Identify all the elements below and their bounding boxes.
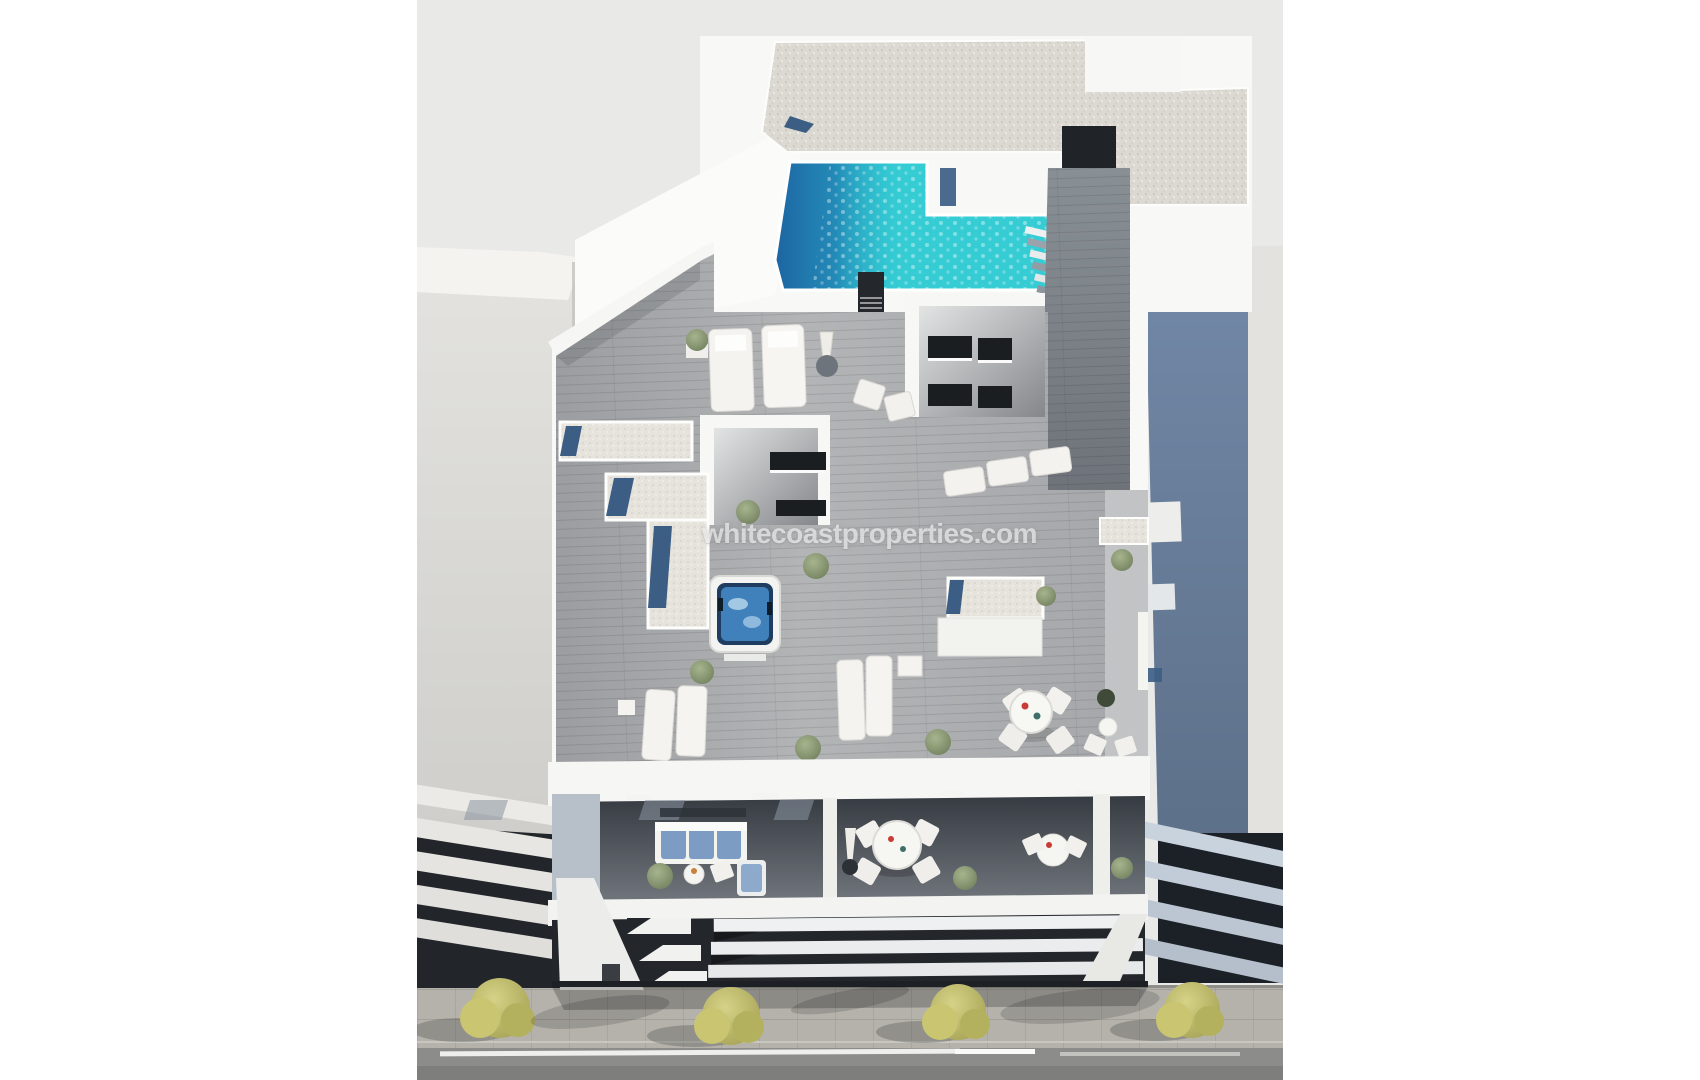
parasol-base (816, 355, 838, 377)
sidewalk-curb-paver (417, 1041, 1283, 1043)
tree-foliage (460, 998, 500, 1038)
stairwell-window (928, 384, 972, 406)
plant-bush (795, 735, 821, 761)
parasol-base (842, 859, 858, 875)
plant-bush (690, 660, 714, 684)
right-pebble-parapet (1100, 518, 1148, 544)
lounger-pillow (715, 334, 747, 351)
water-foam (728, 598, 748, 610)
stairwell-window (978, 386, 1012, 408)
utility-box (602, 964, 620, 982)
plant-bush (925, 729, 951, 755)
stairwell-window (776, 500, 826, 516)
plant-bush (1111, 549, 1133, 571)
round-table (873, 821, 921, 869)
plant-bush (803, 553, 829, 579)
white-terrace-notch (1145, 583, 1176, 610)
sun-lounger (837, 660, 866, 741)
lounger-cushion (741, 864, 762, 892)
sun-lounger (986, 456, 1029, 486)
tree-foliage (694, 1008, 730, 1044)
window-sill (978, 360, 1012, 363)
sofa-cushion (689, 828, 714, 859)
wall-tick (1075, 790, 1097, 795)
stairwell-window (928, 336, 972, 358)
road-asphalt-dark (417, 1066, 1283, 1080)
hot-tub (710, 576, 780, 661)
tree-foliage (1194, 1006, 1224, 1036)
wall-tick (626, 795, 652, 800)
stairwell-window (978, 338, 1012, 360)
stairwell-box-center (700, 415, 830, 525)
roof-white-block (1085, 38, 1181, 92)
lounger-pillow (768, 331, 799, 348)
wall-tick (940, 791, 964, 796)
sun-lounger (1029, 446, 1072, 476)
table-item-red (1022, 703, 1029, 710)
sun-lounger (943, 466, 986, 496)
tree-foliage (732, 1011, 764, 1043)
left-building-roof-wedge (417, 247, 583, 300)
balcony-plant (1111, 857, 1133, 879)
hot-tub-water (721, 587, 769, 641)
sofa-cushion (717, 828, 741, 859)
white-terrace-notch (1144, 501, 1181, 542)
potted-plant (686, 329, 708, 358)
architectural-render (0, 0, 1700, 1080)
headrest (718, 598, 723, 611)
door-pane (464, 800, 508, 820)
balcony-plant (647, 863, 673, 889)
door-pane (774, 800, 814, 820)
balcony-partition (1093, 794, 1110, 904)
hot-tub-step (724, 654, 766, 661)
road-line-faint (1060, 1052, 1240, 1056)
side-table (898, 656, 922, 676)
stairwell-box-upper (905, 293, 1045, 417)
sun-lounger (676, 686, 707, 757)
table-item-red (888, 836, 894, 842)
headrest (767, 602, 772, 615)
parapet-block (938, 618, 1042, 656)
right-building-sunlit-wall (1248, 246, 1283, 836)
wall-tick (752, 793, 778, 798)
render-area (337, 0, 1321, 1080)
skylight (1148, 668, 1162, 682)
balcony-plant (953, 866, 977, 890)
table-item-green (1034, 713, 1041, 720)
tree-foliage (960, 1009, 990, 1039)
tree-foliage (1156, 1002, 1192, 1038)
side-walkway-planks (1040, 168, 1130, 490)
plant-bush (736, 500, 760, 524)
tree-foliage (501, 1003, 535, 1037)
render-viewport: whitecoastproperties.com (0, 0, 1700, 1080)
facade-louvers (708, 915, 1143, 978)
water-foam (743, 616, 761, 628)
roof-skylight-strip (940, 168, 956, 206)
right-edge-parapet (1138, 612, 1148, 690)
sun-lounger (642, 689, 676, 761)
side-table (618, 700, 635, 715)
plant-bush (686, 329, 708, 351)
tree-foliage (922, 1004, 958, 1040)
table-item-green (900, 846, 906, 852)
sofa-back (655, 822, 747, 831)
roof-access-doorway (1062, 126, 1116, 170)
plant-bush (1036, 586, 1056, 606)
stairwell-window (770, 452, 826, 470)
balcony-partition (823, 798, 837, 906)
bistro-table (1099, 718, 1117, 736)
table-item-red (1046, 842, 1052, 848)
sun-lounger (866, 656, 892, 736)
window-sill (928, 358, 972, 361)
window-sill (770, 470, 826, 473)
dark-plant (1097, 689, 1115, 707)
round-table (1010, 691, 1052, 733)
sofa-cushion (661, 828, 686, 859)
facade-base-line (552, 981, 1148, 987)
table-item (691, 868, 697, 874)
road-line-bright-dash (955, 1049, 1035, 1054)
credenza (660, 808, 746, 817)
